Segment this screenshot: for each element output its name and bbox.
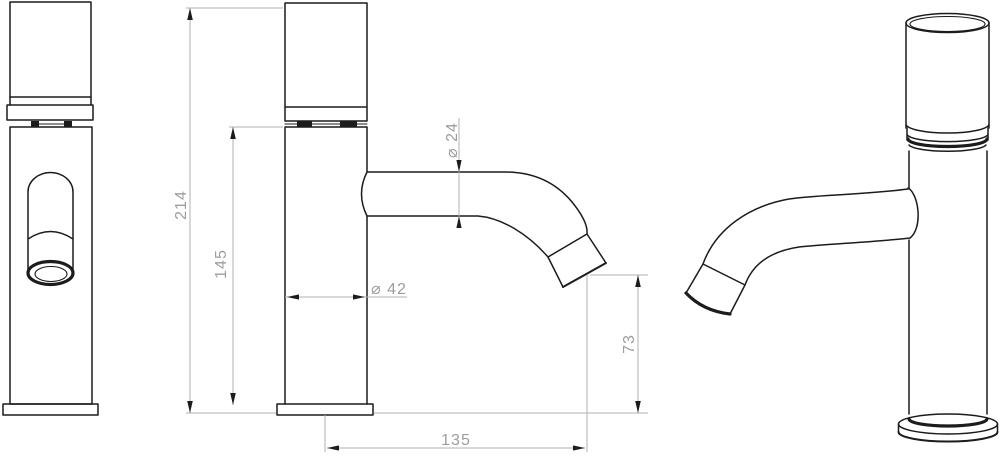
- dimension-outlet-height: 73: [374, 275, 648, 413]
- front-body: [10, 127, 92, 404]
- arrow-left-icon: [287, 294, 299, 299]
- arrow-down-icon: [187, 401, 193, 413]
- dim-label-total-height: 214: [173, 190, 190, 220]
- persp-spout: [686, 188, 918, 314]
- dimension-body-height: 145: [213, 127, 283, 405]
- persp-spout-outlet-face: [686, 293, 730, 314]
- dim-label-body-diameter: ⌀ 42: [371, 281, 407, 298]
- dimension-spout-diameter: ⌀ 24: [444, 118, 462, 228]
- ext-lines: [374, 275, 648, 413]
- perspective-view: [686, 14, 998, 442]
- arrow-up-icon: [635, 275, 641, 287]
- side-spout: [367, 172, 606, 287]
- ext-lines: [325, 275, 587, 452]
- front-handle: [10, 2, 91, 97]
- front-collar: [7, 105, 93, 120]
- side-body: [285, 127, 367, 404]
- dim-label-body-height: 145: [213, 249, 230, 279]
- side-base-plate: [277, 404, 373, 415]
- arrow-right-icon: [573, 445, 585, 450]
- dimension-spout-reach: 135: [325, 275, 587, 452]
- arrow-left-icon: [327, 445, 339, 450]
- persp-base-joint-band: [909, 419, 987, 426]
- front-view: [3, 2, 98, 415]
- dim-label-spout-diameter: ⌀ 24: [444, 122, 461, 158]
- persp-handle-sides: [906, 23, 989, 133]
- arrow-down-icon: [635, 401, 641, 413]
- arrow-up-icon: [456, 216, 461, 228]
- arrow-down-icon: [230, 393, 236, 405]
- front-spout-bore: [35, 267, 67, 282]
- dim-label-outlet-height: 73: [621, 334, 638, 354]
- ext-lines: [186, 8, 283, 413]
- front-base-plate: [3, 404, 98, 415]
- persp-body: [909, 151, 987, 414]
- side-handle: [285, 3, 367, 121]
- persp-handle-top-face: [910, 17, 985, 32]
- technical-drawing: 214 145 ⌀ 42 ⌀ 24 73 135: [0, 0, 1000, 456]
- dimension-body-diameter: ⌀ 42: [285, 281, 407, 300]
- side-view: [277, 3, 606, 415]
- arrow-up-icon: [230, 127, 236, 139]
- dim-label-spout-reach: 135: [441, 432, 471, 449]
- arrow-down-icon: [456, 160, 461, 172]
- persp-base-rim: [899, 414, 998, 434]
- dimension-total-height: 214: [173, 8, 283, 413]
- arrow-up-icon: [187, 8, 193, 20]
- front-neck: [10, 97, 91, 105]
- arrow-right-icon: [353, 294, 365, 299]
- front-spout-profile: [28, 173, 73, 274]
